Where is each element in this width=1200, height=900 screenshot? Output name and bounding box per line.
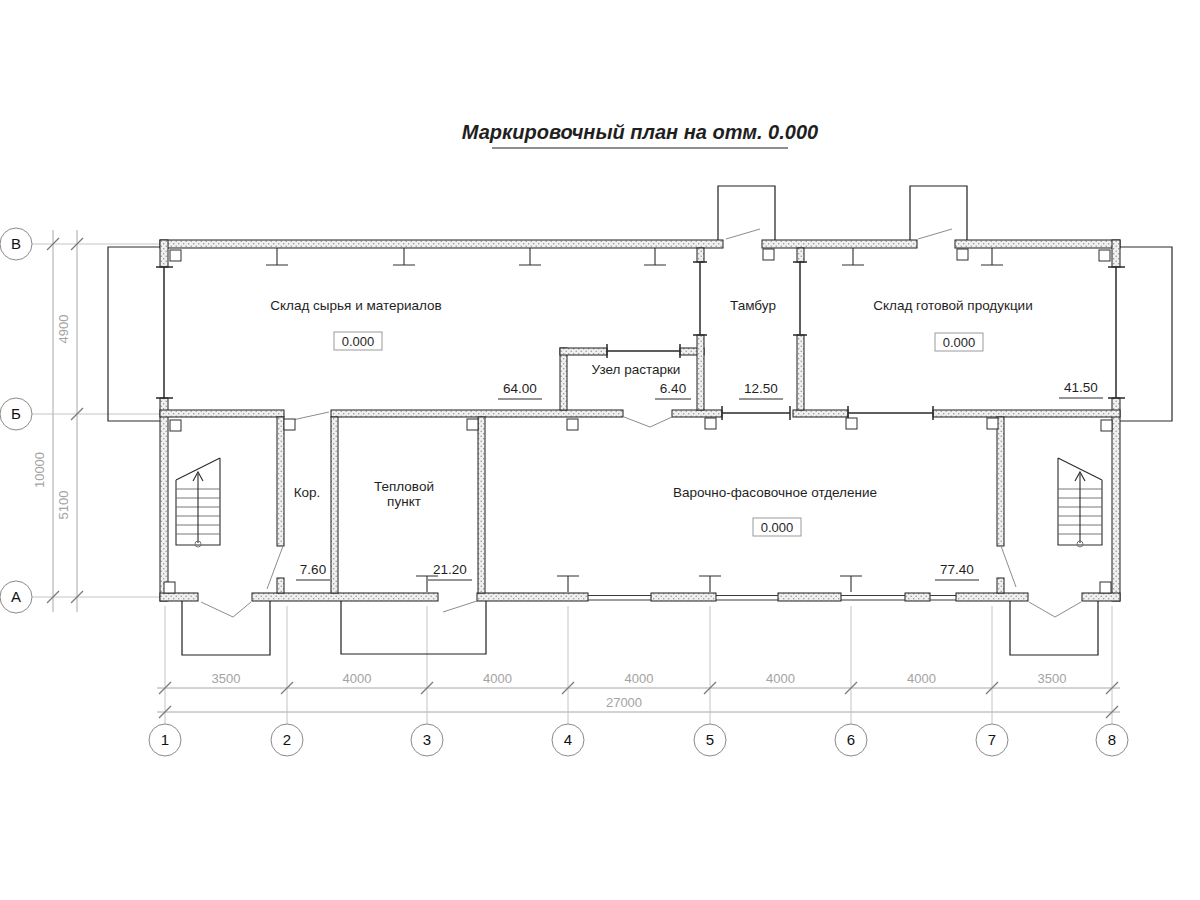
wall-segment	[672, 410, 722, 417]
wall-segment	[1112, 240, 1120, 267]
drawing-title: Маркировочный план на отм. 0.000	[462, 121, 818, 143]
column-mark	[393, 248, 415, 265]
dim-label: 3500	[1038, 671, 1067, 686]
axis-label: 4	[564, 731, 572, 748]
door-jamb	[763, 249, 774, 260]
wall-segment	[1112, 398, 1120, 601]
partition-wall	[797, 335, 804, 410]
door-swing	[201, 602, 251, 617]
column-mark	[840, 576, 862, 592]
door-jamb	[567, 419, 578, 430]
gate-opening	[793, 262, 807, 335]
axis-label: 7	[988, 731, 996, 748]
door-jamb	[705, 418, 716, 429]
dim-label: 4000	[907, 671, 936, 686]
door-swing	[918, 229, 952, 239]
dim-label: 4000	[766, 671, 795, 686]
partition-wall	[560, 348, 607, 355]
dim-label: 5100	[56, 491, 71, 520]
loading-ramp	[108, 247, 160, 421]
partition-wall	[560, 348, 567, 410]
plan-canvas: 1234567835004000400040004000400035002700…	[0, 0, 1200, 900]
door-jamb	[957, 249, 968, 260]
wall-segment	[160, 593, 198, 601]
axis-label: 5	[706, 731, 714, 748]
room-name: Варочно-фасовочное отделение	[673, 485, 877, 500]
entrance-porch	[341, 601, 486, 654]
wall-segment	[252, 593, 438, 601]
wall-segment	[160, 398, 168, 601]
dim-label-total: 27000	[606, 695, 642, 710]
axis-label: 8	[1108, 731, 1116, 748]
column-mark	[699, 576, 721, 592]
dim-label: 4000	[483, 671, 512, 686]
partition-wall	[697, 248, 704, 262]
partition-wall	[697, 335, 704, 410]
axis-label: 3	[423, 731, 431, 748]
room-area: 7.60	[300, 562, 326, 577]
door-jamb	[467, 419, 478, 430]
door-jamb	[170, 420, 181, 431]
column-mark	[842, 248, 864, 265]
room-name: Узел растарки	[592, 362, 681, 377]
partition-wall	[797, 248, 804, 262]
axis-label: 6	[847, 731, 855, 748]
door-jamb	[987, 418, 998, 429]
axis-label: 2	[283, 731, 291, 748]
door-swing	[624, 417, 672, 427]
wall-segment	[160, 240, 168, 267]
partition-wall	[997, 417, 1004, 546]
wall-segment	[933, 410, 1120, 417]
wall-segment	[793, 410, 848, 417]
gate-opening	[693, 262, 707, 335]
room-name: Кор.	[294, 485, 321, 500]
elevation-value: 0.000	[761, 520, 794, 535]
room-name: Склад готовой продукции	[873, 298, 1032, 313]
door-jamb	[170, 250, 181, 261]
entrance-porch	[1010, 601, 1098, 655]
column-mark	[519, 248, 541, 265]
room-area: 77.40	[940, 562, 974, 577]
entrance-porch	[182, 601, 270, 655]
elevation-value: 0.000	[943, 335, 976, 350]
entrance-porch	[718, 186, 775, 240]
partition-wall	[277, 578, 284, 593]
wall-segment	[1082, 593, 1120, 601]
axis-label: 1	[161, 731, 169, 748]
column-mark	[644, 248, 666, 265]
door-jamb	[1099, 250, 1110, 261]
gate-opening	[1108, 267, 1125, 398]
wall-segment	[956, 593, 1028, 601]
wall-segment	[651, 593, 716, 601]
wall-segment	[477, 593, 588, 601]
door-jamb	[164, 582, 175, 593]
dim-label: 4000	[343, 671, 372, 686]
wall-segment	[905, 593, 930, 601]
door-jamb	[284, 419, 295, 430]
partition-wall	[331, 417, 338, 593]
wall-segment	[160, 410, 284, 417]
door-swing	[443, 601, 477, 612]
door-swing	[1029, 602, 1081, 617]
wall-segment	[778, 593, 841, 601]
gate-opening	[848, 406, 933, 420]
room-name: Тепловой	[374, 479, 434, 494]
porches-ramps	[108, 186, 1172, 655]
gate-opening	[607, 344, 680, 358]
elevation-value: 0.000	[342, 334, 375, 349]
wall-segment	[331, 410, 623, 417]
column-mark	[981, 248, 1003, 265]
door-swing	[726, 229, 760, 239]
axis-label: А	[11, 588, 21, 605]
room-name: Тамбур	[730, 298, 776, 313]
wall-segment	[762, 240, 917, 248]
room-area: 41.50	[1064, 380, 1098, 395]
dim-label: 3500	[212, 671, 241, 686]
door-jamb	[846, 418, 857, 429]
dim-label: 10000	[32, 452, 47, 488]
loading-ramp	[1120, 247, 1172, 421]
room-area: 64.00	[503, 381, 537, 396]
dim-label: 4000	[625, 671, 654, 686]
room-labels: Склад сырья и материалов 0.000 64.00 Узе…	[270, 298, 1103, 580]
room-name: пункт	[387, 494, 421, 509]
door-jamb	[1101, 420, 1112, 431]
partition-wall	[997, 578, 1004, 593]
partition-wall	[277, 417, 284, 546]
floor-plan-drawing: 1234567835004000400040004000400035002700…	[0, 0, 1200, 900]
column-mark	[557, 576, 579, 592]
wall-segment	[955, 240, 1120, 248]
room-name: Склад сырья и материалов	[270, 298, 441, 313]
partition-wall	[478, 417, 485, 593]
room-area: 6.40	[660, 381, 686, 396]
building-walls	[160, 240, 1120, 601]
axis-label: Б	[11, 405, 21, 422]
stair-left	[176, 458, 220, 547]
column-mark	[416, 576, 438, 592]
gate-opening	[722, 406, 790, 420]
room-area: 12.50	[744, 381, 778, 396]
column-mark	[266, 248, 288, 265]
wall-segment	[160, 240, 723, 248]
dim-label: 4900	[56, 315, 71, 344]
room-area: 21.20	[433, 562, 467, 577]
door-jamb	[1100, 582, 1111, 593]
axis-label: В	[11, 235, 21, 252]
stair-right	[1058, 458, 1102, 547]
gate-opening	[156, 267, 173, 398]
entrance-porch	[910, 186, 967, 240]
